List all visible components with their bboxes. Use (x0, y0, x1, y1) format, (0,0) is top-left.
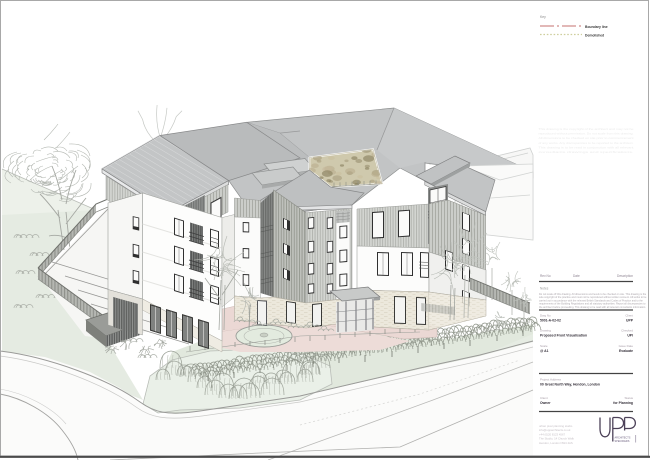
svg-text:Owner: Owner (540, 401, 551, 405)
svg-text:the architect before proceedin: the architect before proceeding. This dr… (539, 306, 646, 309)
svg-text:Client: Client (540, 396, 548, 400)
svg-text:Checked: Checked (621, 329, 633, 333)
svg-text:Scale: Scale (540, 344, 548, 348)
svg-text:of any works. Any discrepancie: of any works. Any discrepancies to be re… (539, 141, 634, 145)
svg-text:Demolished: Demolished (585, 33, 604, 37)
svg-text:UPP: UPP (626, 318, 634, 322)
svg-text:Description: Description (617, 274, 633, 278)
svg-text:Drawing: Drawing (540, 329, 551, 333)
svg-text:00 Great North Way, Hendon, Lo: 00 Great North Way, Hendon, London (540, 383, 600, 387)
svg-text:5001-A-02-02: 5001-A-02-02 (540, 318, 561, 322)
svg-text:Rev No: Rev No (540, 274, 551, 278)
svg-text:This drawing is the copyright: This drawing is the copyright of the arc… (539, 127, 634, 131)
svg-text:Status: Status (624, 396, 633, 400)
svg-text:Client: Client (625, 314, 633, 318)
svg-text:Key: Key (540, 15, 546, 19)
svg-text:consultants drawings and speci: consultants drawings and specifications. (539, 150, 634, 154)
svg-text:Date: Date (573, 274, 580, 278)
svg-text:for Planning: for Planning (613, 401, 633, 405)
svg-text:Boundary line: Boundary line (585, 25, 608, 29)
svg-text:Dwg No: Dwg No (540, 314, 551, 318)
svg-text:UPI: UPI (627, 333, 633, 337)
svg-text:@ A1: @ A1 (540, 349, 549, 353)
svg-text:Project Address: Project Address (540, 378, 562, 382)
svg-text:Notes: Notes (540, 287, 549, 291)
svg-text:Hendon, London NW4 4AS: Hendon, London NW4 4AS (539, 441, 573, 445)
svg-text:SPECIFIERS: SPECIFIERS (615, 440, 630, 443)
svg-text:Evaluate: Evaluate (619, 349, 633, 353)
svg-text:reproduced without permission.: reproduced without permission. Do not sc… (539, 132, 634, 136)
svg-text:Proposed Front Visualisation: Proposed Front Visualisation (540, 333, 587, 337)
svg-text:Issue Date: Issue Date (619, 344, 634, 348)
svg-text:All dimensions to be checked o: All dimensions to be checked on site pri… (539, 136, 634, 140)
svg-text:This drawing is to be read in: This drawing is to be read in conjunctio… (539, 145, 634, 149)
